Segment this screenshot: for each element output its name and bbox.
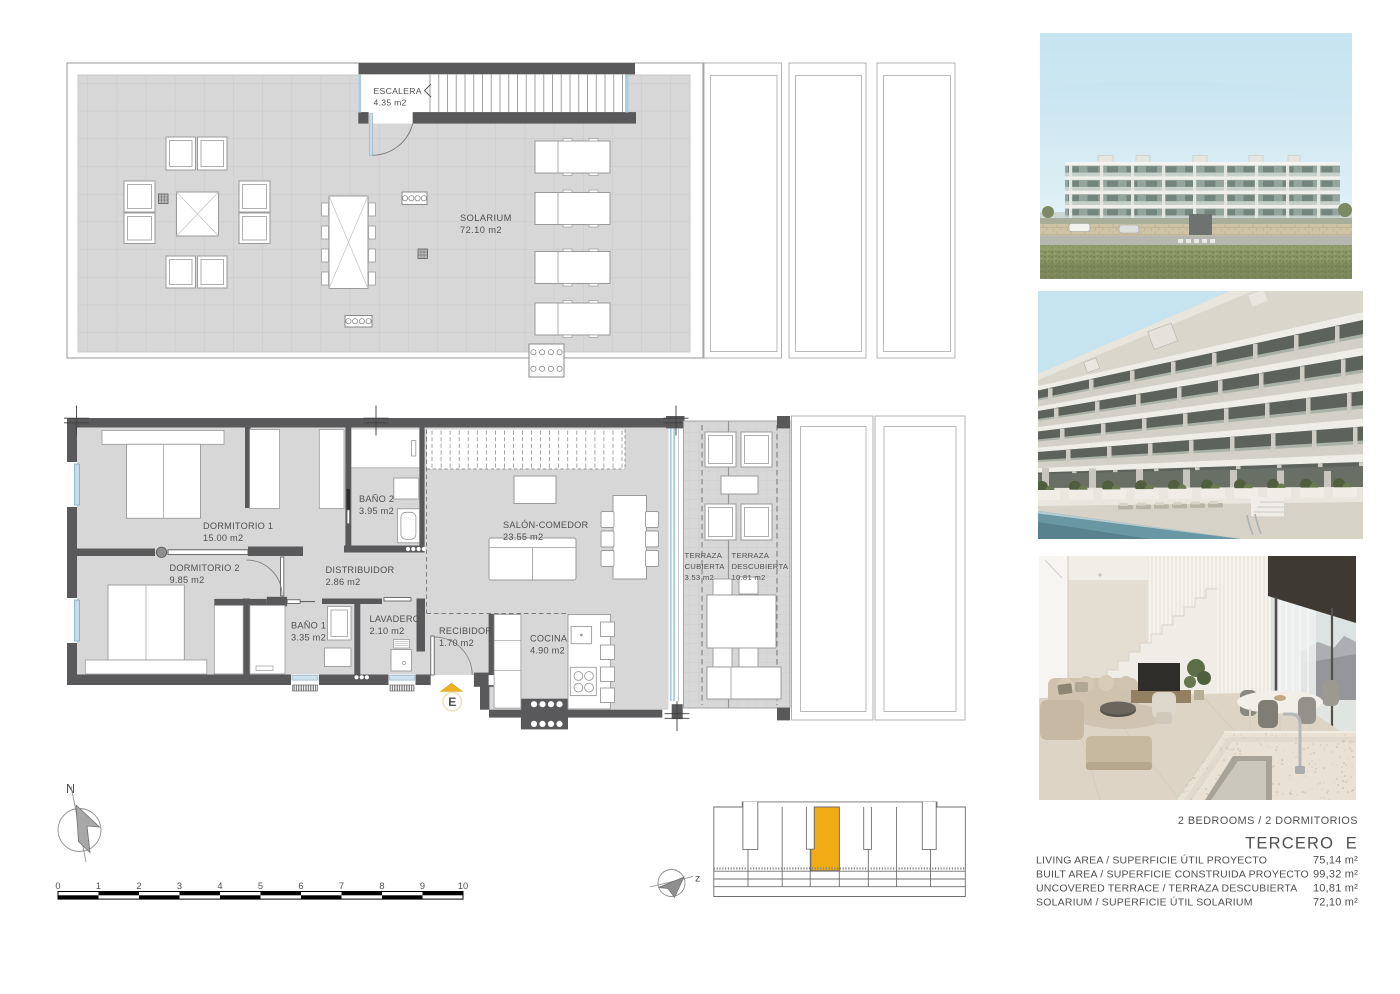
svg-text:3.95 m2: 3.95 m2	[359, 506, 394, 516]
svg-text:9: 9	[420, 881, 425, 891]
svg-text:RECIBIDOR: RECIBIDOR	[439, 626, 492, 636]
svg-text:4.35 m2: 4.35 m2	[374, 98, 407, 108]
svg-text:SOLARIUM: SOLARIUM	[460, 213, 512, 223]
svg-text:72,10 m²: 72,10 m²	[1313, 897, 1358, 909]
svg-text:0: 0	[55, 881, 60, 891]
svg-text:5: 5	[258, 881, 263, 891]
svg-text:TERCERO E: TERCERO E	[1245, 835, 1358, 853]
svg-text:10,81 m²: 10,81 m²	[1313, 883, 1358, 895]
svg-text:3: 3	[177, 881, 182, 891]
svg-text:BUILT AREA / SUPERFICIE CONSTR: BUILT AREA / SUPERFICIE CONSTRUIDA PROYE…	[1036, 869, 1309, 881]
svg-text:8: 8	[379, 881, 384, 891]
svg-text:DORMITORIO 2: DORMITORIO 2	[170, 563, 240, 573]
svg-text:ESCALERA: ESCALERA	[374, 86, 422, 96]
svg-text:BAÑO 1: BAÑO 1	[291, 621, 326, 631]
svg-text:DESCUBIERTA: DESCUBIERTA	[732, 562, 789, 571]
svg-text:LAVADERO: LAVADERO	[370, 614, 421, 624]
svg-text:6: 6	[298, 881, 303, 891]
svg-text:10.81 m2: 10.81 m2	[732, 573, 766, 582]
svg-text:TERRAZA: TERRAZA	[685, 551, 723, 560]
svg-text:4.90 m2: 4.90 m2	[530, 646, 565, 656]
svg-text:99,32 m²: 99,32 m²	[1313, 869, 1358, 881]
svg-text:2 BEDROOMS / 2 DORMITORIOS: 2 BEDROOMS / 2 DORMITORIOS	[1178, 815, 1358, 827]
svg-text:CUBIERTA: CUBIERTA	[685, 562, 726, 571]
svg-text:COCINA: COCINA	[530, 634, 568, 644]
svg-text:23.55 m2: 23.55 m2	[503, 532, 543, 542]
svg-text:DISTRIBUIDOR: DISTRIBUIDOR	[326, 565, 395, 575]
svg-text:N: N	[66, 782, 75, 796]
svg-text:UNCOVERED TERRACE / TERRAZA DE: UNCOVERED TERRACE / TERRAZA DESCUBIERTA	[1036, 883, 1297, 895]
svg-text:75,14 m²: 75,14 m²	[1313, 855, 1358, 867]
svg-text:3.35 m2: 3.35 m2	[291, 633, 326, 643]
svg-text:2.86 m2: 2.86 m2	[326, 577, 361, 587]
svg-text:BAÑO 2: BAÑO 2	[359, 494, 394, 504]
svg-text:SALÓN-COMEDOR: SALÓN-COMEDOR	[503, 520, 589, 530]
svg-text:9.85 m2: 9.85 m2	[170, 575, 205, 585]
svg-text:LIVING AREA / SUPERFICIE ÚTIL: LIVING AREA / SUPERFICIE ÚTIL PROYECTO	[1036, 854, 1267, 867]
svg-text:10: 10	[458, 881, 468, 891]
svg-text:DORMITORIO 1: DORMITORIO 1	[203, 521, 273, 531]
svg-text:z: z	[695, 873, 700, 885]
svg-text:TERRAZA: TERRAZA	[732, 551, 770, 560]
svg-text:2.10 m2: 2.10 m2	[370, 626, 405, 636]
svg-text:1: 1	[96, 881, 101, 891]
svg-text:2: 2	[136, 881, 141, 891]
svg-text:3.53 m2: 3.53 m2	[685, 573, 715, 582]
svg-text:4: 4	[217, 881, 222, 891]
svg-text:E: E	[448, 695, 456, 709]
svg-text:1.70 m2: 1.70 m2	[439, 638, 474, 648]
svg-text:72.10 m2: 72.10 m2	[460, 225, 502, 235]
svg-text:7: 7	[339, 881, 344, 891]
svg-text:15.00 m2: 15.00 m2	[203, 533, 243, 543]
svg-text:SOLARIUM / SUPERFICIE ÚTIL SOL: SOLARIUM / SUPERFICIE ÚTIL SOLARIUM	[1036, 896, 1253, 909]
